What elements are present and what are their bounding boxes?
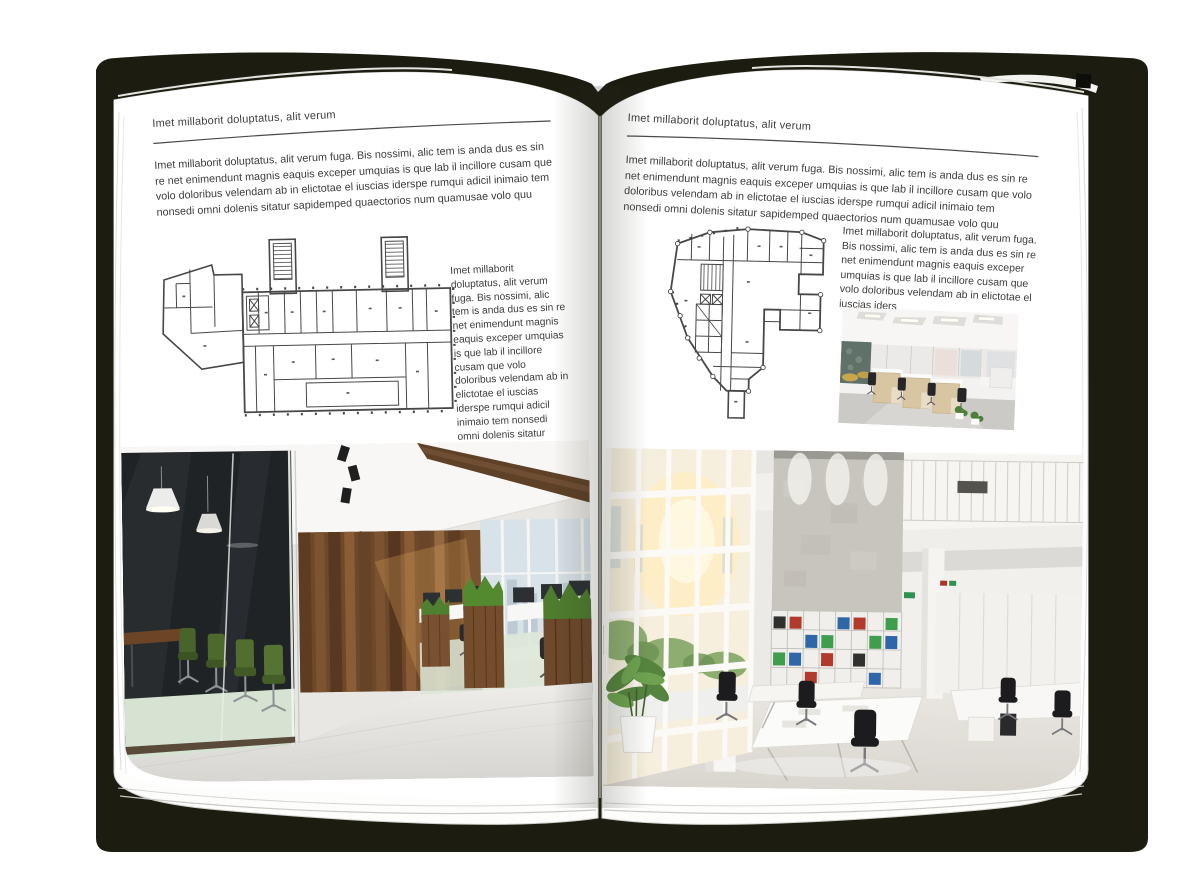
left-figure-caption: Imet millaborit doluptatus, alit verum f…: [450, 260, 573, 472]
floor-plan-left: [153, 230, 460, 423]
office-photo-left: [121, 440, 594, 783]
magazine-mockup: Imet millaborit doluptatus, alit verum I…: [0, 0, 1200, 891]
floor-plan-right: [648, 219, 835, 424]
right-figure-caption: Imet millaborit doluptatus, alit verum f…: [839, 224, 1051, 321]
office-photo-small: [838, 307, 1019, 430]
office-photo-right: [601, 448, 1084, 793]
right-page-article: Imet millaborit doluptatus, alit verum I…: [623, 112, 1048, 235]
left-page-article: Imet millaborit doluptatus, alit verum I…: [152, 98, 561, 221]
